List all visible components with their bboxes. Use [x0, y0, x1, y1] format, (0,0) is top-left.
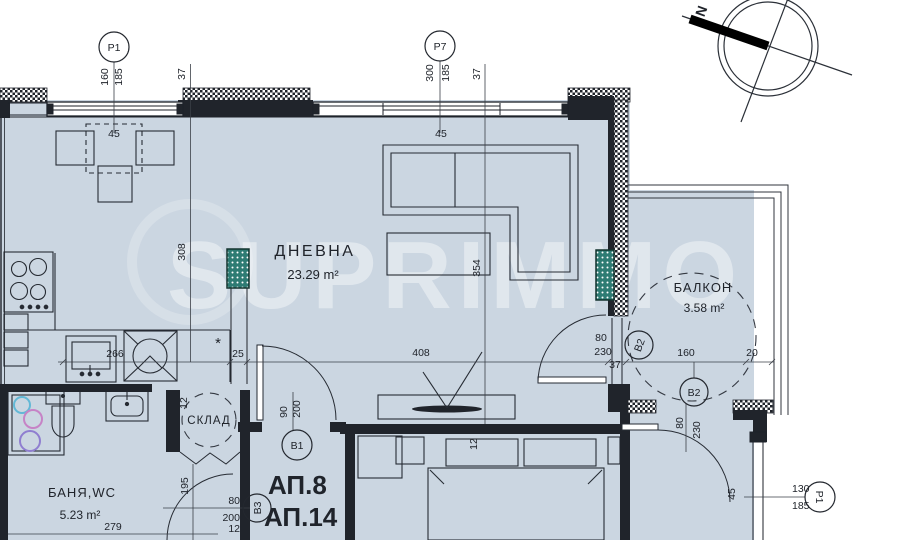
marker-label: B1 — [291, 440, 304, 452]
tv-screen — [412, 406, 482, 413]
dim-label: 130 — [792, 483, 810, 495]
dim-label: 230 — [691, 421, 703, 439]
dim-label: 25 — [232, 348, 244, 360]
dim-label: 12 — [468, 438, 480, 450]
marker-label: B2 — [688, 387, 701, 399]
room-area-bath: 5.23 m² — [60, 508, 101, 522]
dim-label: 195 — [179, 477, 191, 495]
dim-label: 80 — [595, 332, 607, 344]
dim-label: 408 — [412, 347, 430, 359]
room-name-living: ДНЕВНА — [275, 243, 356, 260]
north-compass: N — [682, 0, 852, 122]
dim-label: 20 — [746, 347, 758, 359]
dim-label: 45 — [726, 488, 738, 500]
marker-label: P7 — [434, 41, 447, 53]
insulation-hatch — [614, 100, 628, 316]
window-living — [313, 102, 568, 116]
dim-label: 80 — [674, 417, 686, 429]
dim-label: 80 — [228, 495, 240, 507]
room-name-balcony: БАЛКОН — [674, 280, 733, 295]
dim-label: 160 — [677, 347, 695, 359]
dim-label: 160 — [99, 68, 111, 86]
floor-plan-drawing: SUPRIMMO — [0, 0, 900, 540]
insulation-hatch — [628, 400, 656, 413]
north-needle — [690, 19, 768, 46]
marker-label: B3 — [252, 501, 264, 514]
dim-label: 308 — [176, 243, 188, 261]
dim-label: 12 — [228, 523, 240, 535]
dim-label: 37 — [609, 359, 621, 371]
floor-plan: SUPRIMMO — [0, 0, 900, 540]
room-area-balcony: 3.58 m² — [684, 301, 725, 315]
column — [227, 249, 249, 288]
dim-label: 230 — [594, 346, 612, 358]
apartment-number-2: АП.14 — [264, 502, 338, 532]
dim-label: 185 — [113, 68, 125, 86]
insulation-hatch — [183, 88, 310, 102]
dim-label: 12 — [178, 397, 190, 409]
dim-label: 37 — [176, 68, 188, 80]
room-name-storage: СКЛАД — [187, 415, 230, 427]
dim-label: 185 — [440, 64, 452, 82]
dim-label: 45 — [435, 128, 447, 140]
asterisk-note: * — [215, 335, 221, 352]
apartment-area-clipped: 23.44 m² — [268, 536, 360, 540]
dim-label: 200 — [291, 400, 303, 418]
dim-label: 90 — [278, 406, 290, 418]
apartment-number-1: АП.8 — [268, 470, 327, 500]
dim-label: 279 — [104, 521, 122, 533]
dim-label: 300 — [424, 64, 436, 82]
dim-label: 37 — [471, 68, 483, 80]
dim-label: 354 — [471, 259, 483, 277]
room-name-bath: БАНЯ,WC — [48, 485, 116, 500]
room-area-living: 23.29 m² — [287, 267, 339, 282]
insulation-hatch — [0, 88, 47, 102]
dim-label: 45 — [108, 128, 120, 140]
marker-label: P1 — [108, 42, 121, 54]
dim-label: 185 — [792, 500, 810, 512]
dim-label: 266 — [106, 348, 124, 360]
watermark: SUPRIMMO — [132, 204, 743, 329]
marker-label: P1 — [813, 491, 825, 504]
column — [596, 250, 614, 300]
